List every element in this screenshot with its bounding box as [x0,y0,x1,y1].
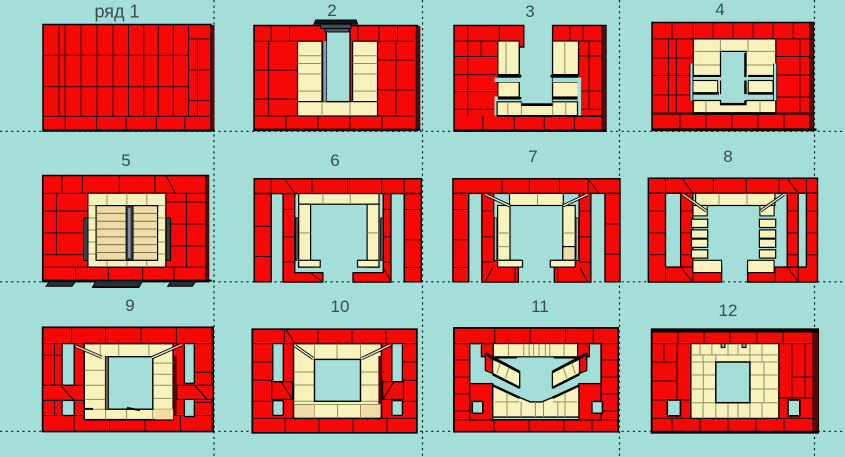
svg-text:9: 9 [125,296,134,315]
svg-text:4: 4 [715,0,724,19]
svg-text:7: 7 [528,147,537,166]
svg-text:6: 6 [330,151,339,170]
svg-text:3: 3 [525,2,534,21]
svg-text:5: 5 [121,151,130,170]
svg-text:8: 8 [723,147,732,166]
svg-text:12: 12 [719,301,738,320]
svg-text:11: 11 [531,297,549,316]
svg-text:10: 10 [331,297,350,316]
svg-text:ряд 1: ряд 1 [94,2,139,22]
svg-text:2: 2 [327,1,336,20]
